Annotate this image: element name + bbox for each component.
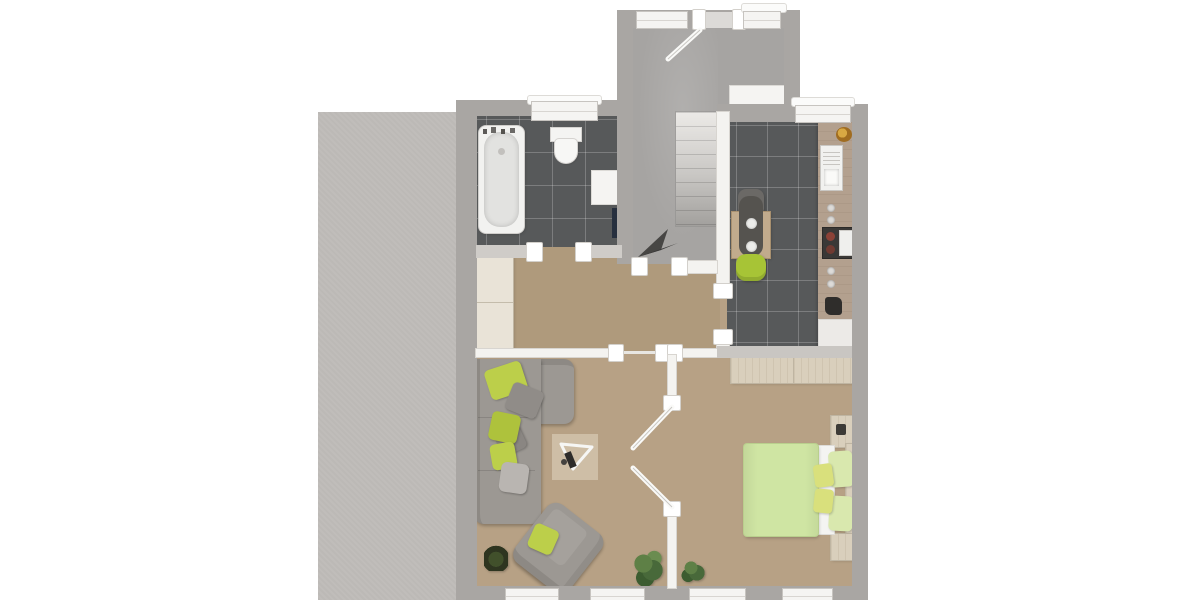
hall-bedroom-wall	[678, 349, 717, 357]
bathtub-drain	[498, 148, 505, 155]
bathroom-bottom-wall	[591, 245, 622, 258]
staircase	[676, 112, 718, 226]
sofa-pillow-light	[498, 461, 530, 495]
entry-door-post	[693, 10, 705, 29]
exterior-wall-left	[456, 100, 477, 600]
entry-door-opening	[700, 12, 734, 28]
hall-doorway-post	[609, 345, 623, 361]
living-bedroom-wall	[668, 355, 676, 400]
living-room-window-1	[506, 589, 558, 600]
living-room-window-2	[591, 589, 644, 600]
bedroom-sideboard	[731, 358, 856, 383]
plate	[746, 218, 757, 229]
bathroom-door-post	[527, 243, 542, 261]
bedroom-window-1	[690, 589, 745, 600]
bath-fittings	[481, 126, 521, 140]
exterior-wall-right	[852, 104, 868, 600]
fruit-bowl	[836, 127, 852, 142]
hob-knob	[827, 204, 835, 212]
stairhall-door-post	[632, 258, 647, 275]
stairwell-window-right	[744, 12, 780, 28]
bed-duvet	[744, 444, 818, 536]
dining-chair-green	[736, 254, 766, 281]
plate	[746, 241, 757, 252]
stairhall-bottom-wall	[686, 261, 717, 273]
window-sill	[742, 4, 786, 12]
kitchen-door-post	[714, 330, 732, 344]
bed-pillow-yellow	[813, 488, 834, 514]
bathroom-window	[532, 102, 597, 120]
sofa-pillow-green	[487, 410, 521, 444]
kitchen-window	[796, 106, 850, 122]
kitchen-knob	[827, 280, 835, 288]
bed-pillow-yellow	[812, 463, 834, 488]
living-room-plant-small	[484, 545, 508, 571]
floor-plan-canvas	[0, 0, 1200, 600]
coffee-machine	[825, 297, 842, 315]
hall-living-wall	[476, 349, 612, 357]
nightstand-item	[836, 424, 846, 435]
kitchen-knob	[827, 267, 835, 275]
bathroom-cabinet	[592, 171, 620, 204]
kitchen-bedroom-wall	[717, 346, 852, 358]
coffee-table-rug	[552, 434, 598, 480]
bathtub-basin	[484, 132, 519, 227]
stairwell-wall-left	[617, 10, 633, 264]
double-door-post	[664, 502, 680, 516]
kitchen-door-post	[714, 284, 732, 298]
stairhall-door-post	[672, 258, 687, 275]
neighbor-building-block	[318, 112, 458, 600]
bedroom-plant	[678, 553, 707, 586]
living-room-plant-tall	[629, 546, 665, 590]
kitchen-hall-wall	[717, 112, 729, 296]
kitchen-sink	[821, 146, 842, 190]
kitchen-plant	[743, 122, 770, 149]
living-bedroom-wall	[668, 508, 676, 588]
hall-wardrobe	[474, 255, 513, 350]
window-sill	[792, 98, 854, 106]
stairwell-wall-right	[784, 10, 800, 112]
hob-knob	[827, 216, 835, 224]
counter-end-unit	[819, 320, 856, 348]
double-door-post	[664, 396, 680, 410]
stairwell-window-left	[637, 12, 687, 28]
bedroom-window-2	[783, 589, 832, 600]
bathroom-bottom-wall	[476, 245, 527, 258]
bathtub	[479, 126, 524, 233]
bathroom-door-post	[576, 243, 591, 261]
toilet	[551, 128, 581, 164]
